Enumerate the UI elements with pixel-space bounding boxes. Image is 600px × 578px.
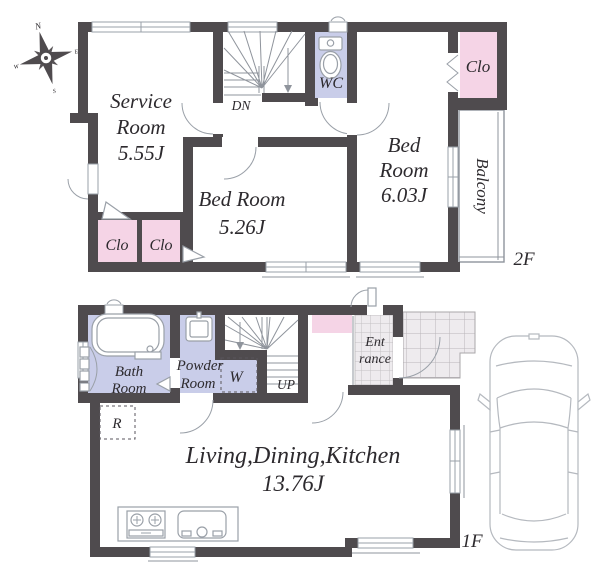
car-icon xyxy=(478,334,590,550)
floor-plan-drawing: N E S W Service Room 5.55J Bed Room 5.26… xyxy=(0,0,600,578)
powder-room-label2: Room xyxy=(180,376,216,392)
stairs-up-label: UP xyxy=(277,377,295,392)
window xyxy=(228,22,277,32)
refrigerator-label: R xyxy=(111,416,121,432)
door-swing xyxy=(182,103,223,134)
bath-room-label: Bath xyxy=(115,364,143,380)
stove-icon xyxy=(127,511,165,538)
closet-left-1-label: Clo xyxy=(105,237,128,254)
window xyxy=(150,547,195,557)
door-swing xyxy=(308,385,348,423)
window xyxy=(448,147,458,207)
bed-room-2-label2: Room xyxy=(379,158,429,182)
door-swing xyxy=(318,98,352,134)
powder-room-label: Powder xyxy=(176,358,224,374)
compass-w: W xyxy=(13,64,20,71)
closet-door-mark xyxy=(102,202,130,219)
door-swing xyxy=(347,103,389,135)
floor-2f-label: 2F xyxy=(513,249,535,270)
down-arrow-icon xyxy=(284,85,292,93)
compass-n: N xyxy=(33,20,43,32)
ldk-area: 13.76J xyxy=(262,471,326,496)
kitchen-counter xyxy=(118,507,238,541)
closet-door-mark xyxy=(183,246,204,262)
window xyxy=(92,22,190,32)
up-arrow-icon xyxy=(236,342,244,350)
window xyxy=(358,538,413,548)
bed-room-1-label: Bed Room xyxy=(199,187,286,211)
bed-room-2-area: 6.03J xyxy=(381,183,429,207)
closet-left-2-label: Clo xyxy=(149,237,172,254)
service-room-area: 5.55J xyxy=(118,141,166,165)
wc-vent-window xyxy=(329,17,347,32)
casement-window xyxy=(68,164,98,199)
staircase-2f-icon xyxy=(224,31,305,93)
toilet-icon xyxy=(319,37,342,79)
bath-room-label2: Room xyxy=(111,381,147,397)
entrance-tile xyxy=(353,315,393,385)
bathtub-icon xyxy=(92,314,164,359)
floor-plan-page: N E S W Service Room 5.55J Bed Room 5.26… xyxy=(0,0,600,578)
sink-icon xyxy=(178,511,226,538)
compass-icon: N E S W xyxy=(4,13,87,103)
window xyxy=(360,262,420,272)
wc-label: WC xyxy=(319,75,343,92)
window xyxy=(266,262,346,272)
bed-room-1-area: 5.26J xyxy=(219,215,267,239)
bed-room-2-label: Bed xyxy=(388,133,421,157)
entrance-label2: rance xyxy=(359,352,391,367)
floor-1f-plan: Living,Dining,Kitchen 13.76J Bath Room P… xyxy=(78,288,590,561)
service-room-label2: Room xyxy=(116,115,166,139)
window xyxy=(450,430,460,493)
bath-window xyxy=(105,300,123,315)
compass-s: S xyxy=(52,89,56,96)
door-swing xyxy=(222,137,258,179)
ldk-label: Living,Dining,Kitchen xyxy=(185,443,401,469)
service-room-label: Service xyxy=(110,89,172,113)
entrance-label: Ent xyxy=(364,335,386,350)
closet-right-label: Clo xyxy=(466,57,491,76)
balcony-label: Balcony xyxy=(473,158,492,214)
washer-label: W xyxy=(229,369,244,386)
floor-1f-label: 1F xyxy=(461,531,483,552)
shoe-cabinet xyxy=(312,315,352,333)
stairs-dn-label: DN xyxy=(231,98,252,113)
door-swing xyxy=(180,393,213,433)
floor-2f-plan: N E S W Service Room 5.55J Bed Room 5.26… xyxy=(4,13,535,277)
bifold-closet-door xyxy=(447,55,458,91)
